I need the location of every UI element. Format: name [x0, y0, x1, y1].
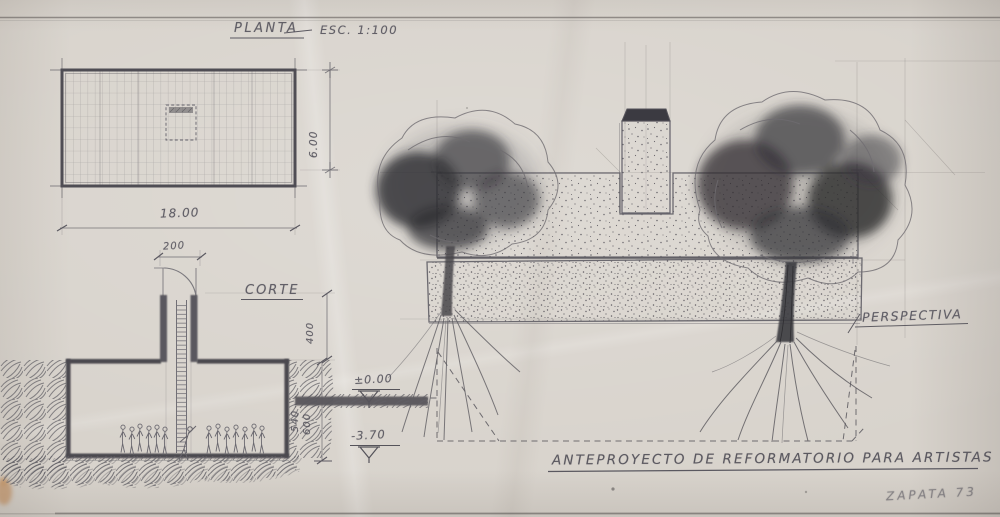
plan-width-dim-label: 18.00	[160, 205, 200, 220]
tree-left-roots	[388, 310, 520, 440]
ground-level-label: ±0.00	[354, 372, 393, 387]
floor-level-label: -3.70	[351, 427, 386, 443]
sketch-canvas	[0, 0, 1000, 517]
slab-lower-band	[427, 258, 862, 322]
section-shaft-width-dimension	[154, 250, 206, 266]
plan-roof-grid	[62, 70, 295, 186]
room-depth-inner-dim-label: 540	[290, 410, 301, 432]
room-depth-outer-dim-label: 600	[302, 413, 313, 435]
section-door-arc	[154, 268, 196, 296]
plan-depth-dim-label: 6.00	[308, 131, 320, 158]
perspective-tower	[620, 109, 671, 213]
plan-scale-label: ESC. 1:100	[320, 23, 398, 37]
plan-depth-dimension	[295, 62, 340, 178]
section-ladder	[176, 300, 187, 453]
shaft-width-dim-label: 200	[163, 240, 186, 252]
photograph-of-architectural-sketch: PLANTA ESC. 1:100 18.00 200 6.00 400 540…	[0, 0, 1000, 517]
shaft-height-dim-label: 400	[305, 322, 316, 344]
section-title-label: CORTE	[245, 283, 300, 298]
plan-title-label: PLANTA	[234, 21, 298, 36]
level-marker-floor	[350, 446, 400, 464]
tree-right-roots	[700, 332, 890, 443]
perspective-view	[376, 42, 1000, 443]
drawing-main-title: ANTEPROYECTO DE REFORMATORIO PARA ARTIST…	[552, 449, 994, 468]
section-view	[0, 250, 428, 490]
